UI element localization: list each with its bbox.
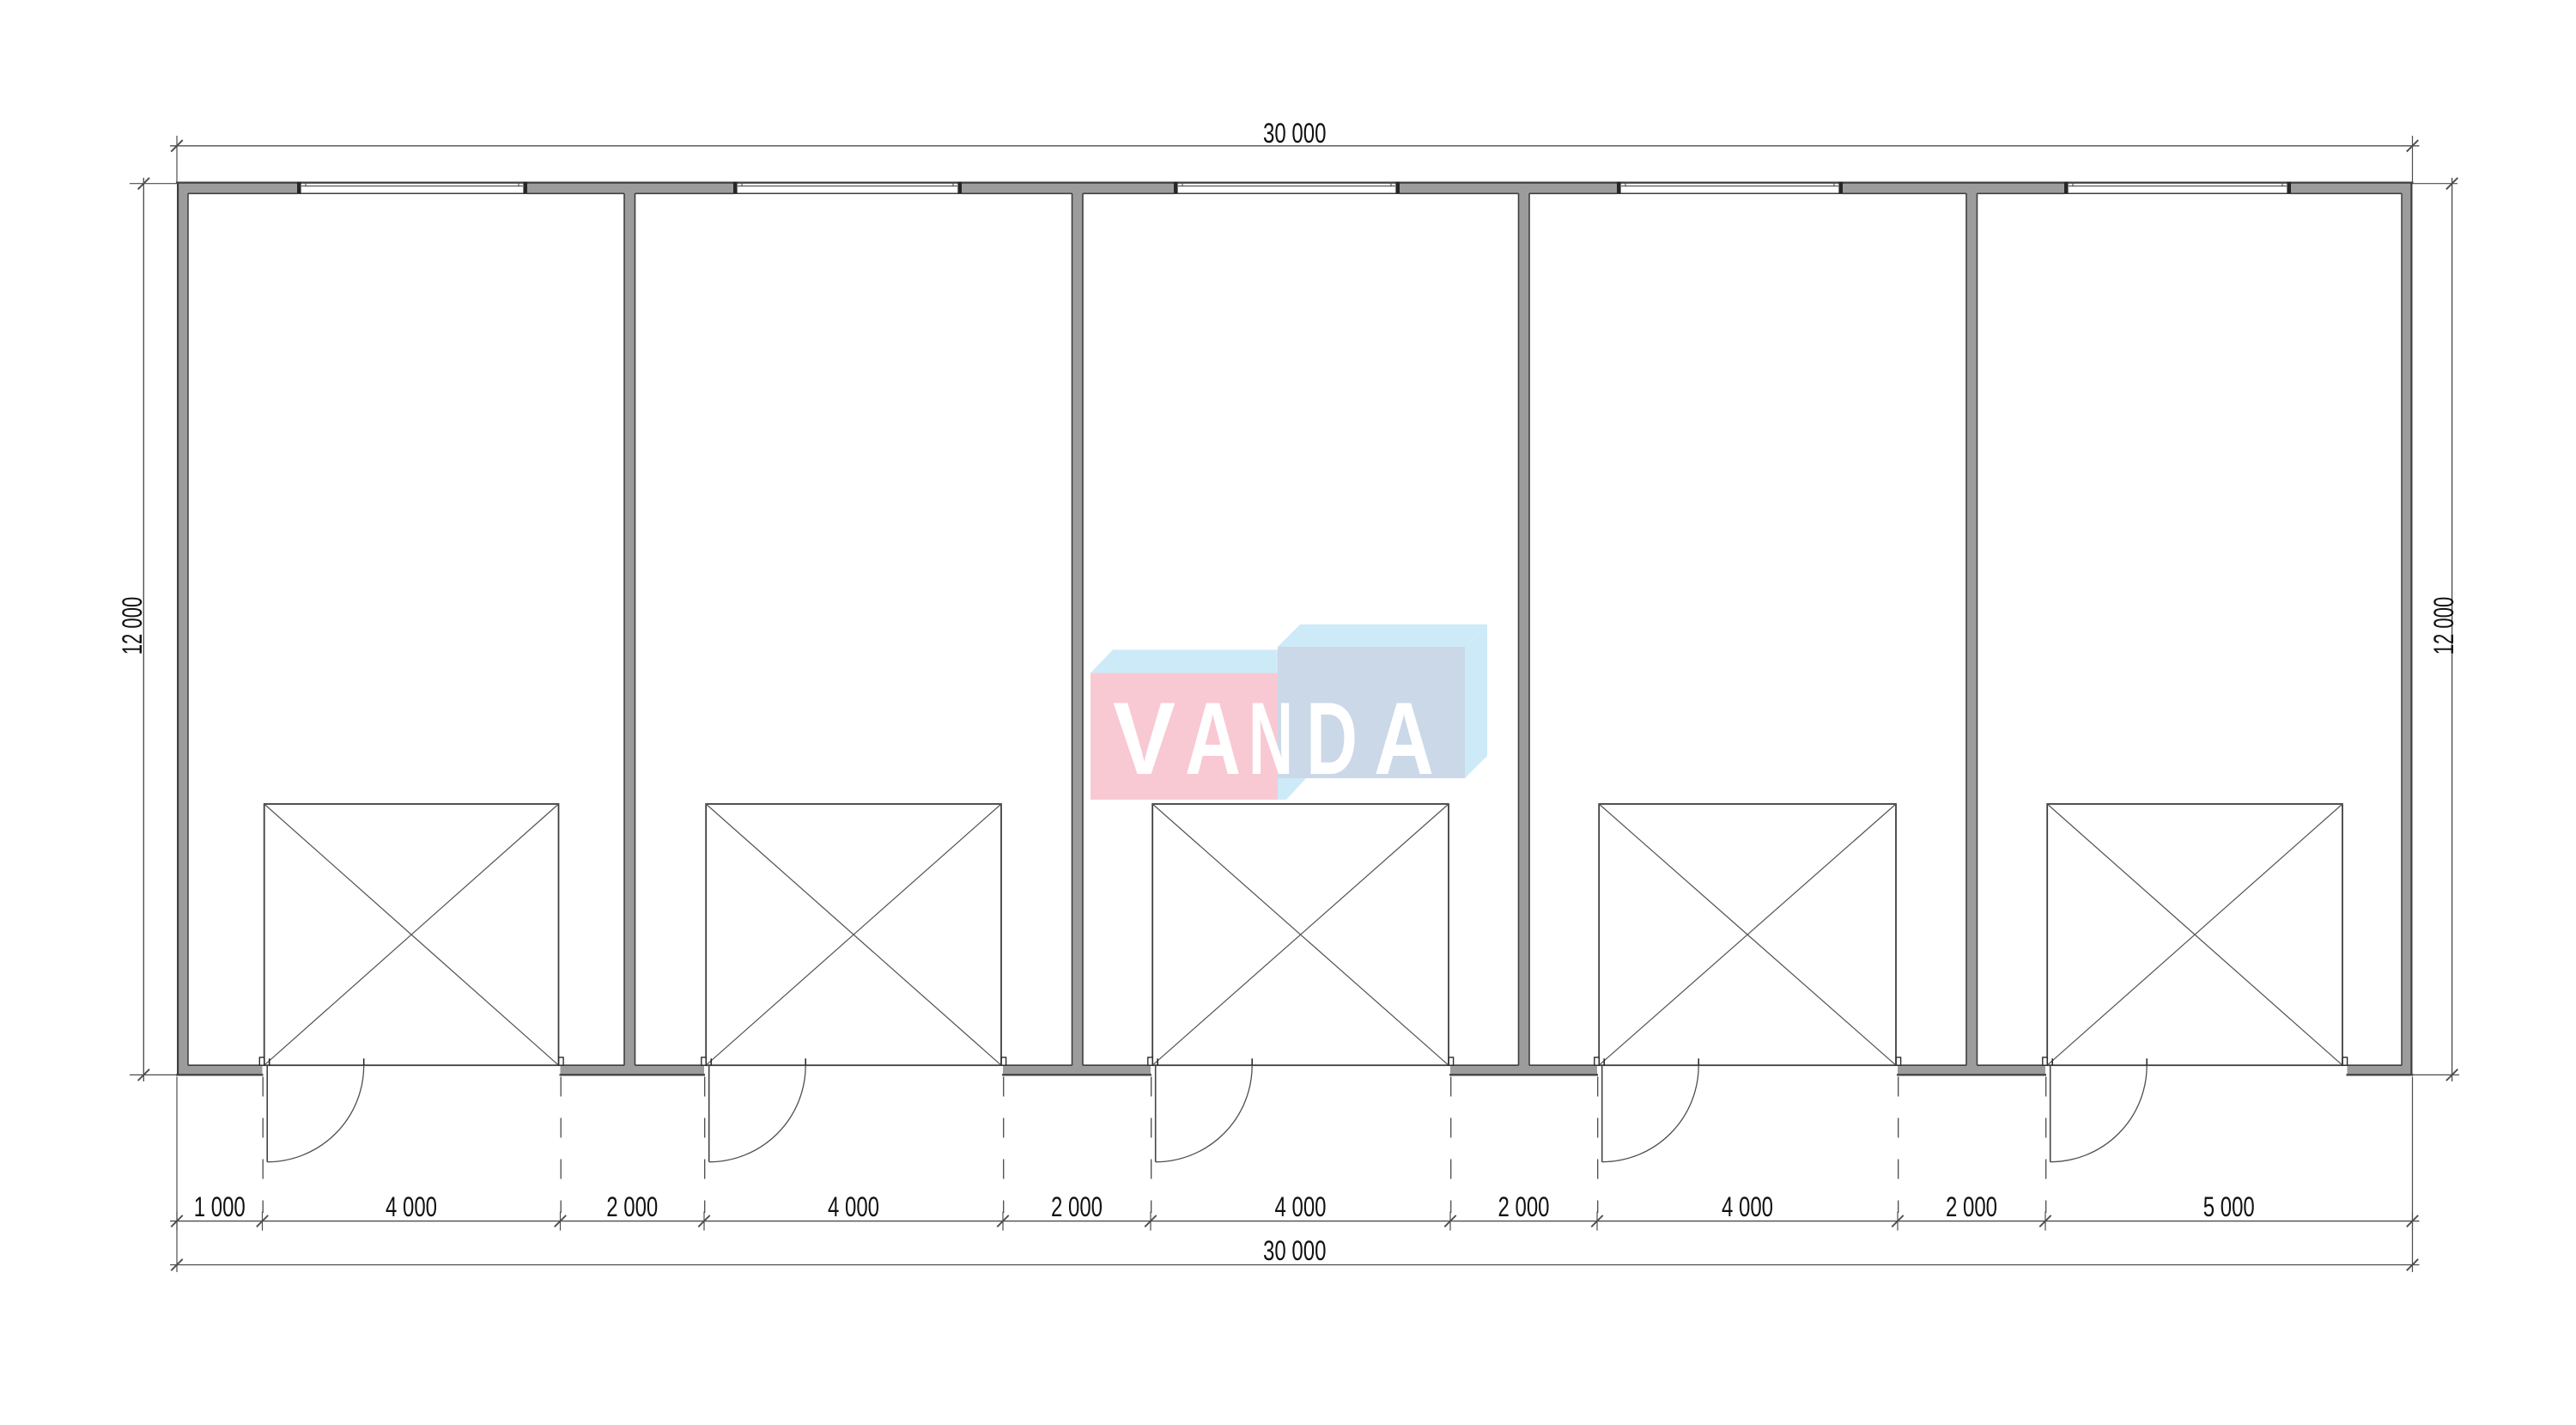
svg-text:N: N	[1249, 681, 1293, 796]
svg-text:12 000: 12 000	[117, 597, 148, 655]
svg-text:4 000: 4 000	[828, 1191, 879, 1222]
svg-text:D: D	[1306, 681, 1358, 796]
svg-text:2 000: 2 000	[1498, 1191, 1550, 1222]
svg-text:2 000: 2 000	[606, 1191, 658, 1222]
svg-text:30 000: 30 000	[1263, 118, 1327, 149]
svg-text:V: V	[1113, 681, 1176, 796]
svg-text:4 000: 4 000	[1275, 1191, 1327, 1222]
svg-text:30 000: 30 000	[1263, 1235, 1327, 1266]
svg-text:4 000: 4 000	[386, 1191, 437, 1222]
svg-text:A: A	[1185, 681, 1241, 796]
svg-text:12 000: 12 000	[2428, 597, 2459, 655]
svg-text:4 000: 4 000	[1722, 1191, 1773, 1222]
svg-text:2 000: 2 000	[1946, 1191, 1997, 1222]
svg-text:1 000: 1 000	[194, 1191, 246, 1222]
svg-text:2 000: 2 000	[1051, 1191, 1103, 1222]
svg-text:A: A	[1374, 681, 1434, 796]
svg-text:5 000: 5 000	[2203, 1191, 2255, 1222]
